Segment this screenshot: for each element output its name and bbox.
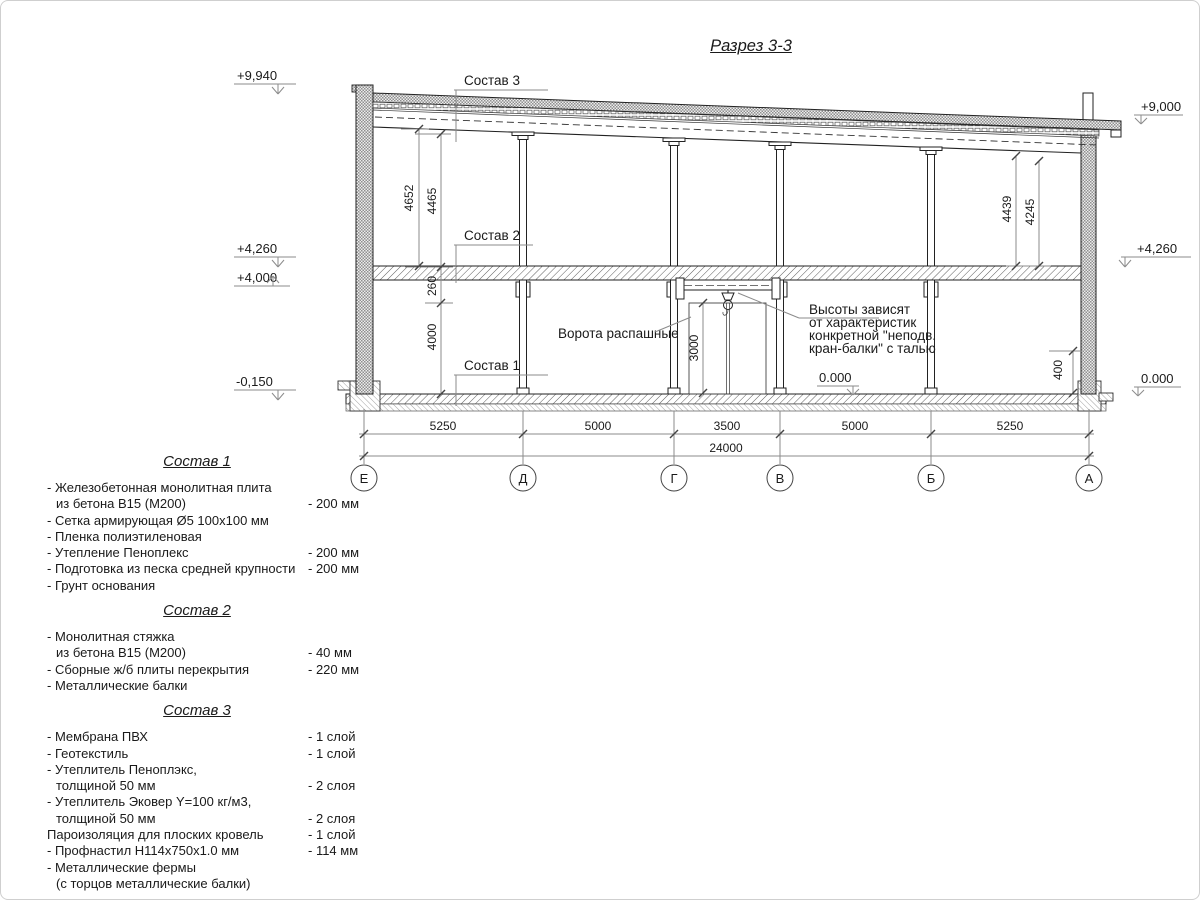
spec-row: - Геотекстиль- 1 слой — [47, 746, 377, 762]
column-upper — [512, 132, 942, 266]
spec-row: - Утепление Пеноплекс- 200 мм — [47, 545, 377, 561]
spec-row: - Сборные ж/б плиты перекрытия- 220 мм — [47, 662, 377, 678]
svg-text:260: 260 — [425, 276, 439, 296]
dim-bottom-chain: 5250 5000 3500 5000 5250 24000 — [359, 409, 1094, 464]
spec-heading: Состав 1 — [47, 453, 347, 474]
callout-crane-note: Высоты зависят от характеристик конкретн… — [738, 293, 936, 356]
svg-text:+4,260: +4,260 — [1137, 241, 1177, 256]
spec-row: - Пленка полиэтиленовая — [47, 529, 377, 545]
spec-item-value: - 1 слой — [308, 729, 356, 745]
spec-row: толщиной 50 мм- 2 слоя — [47, 778, 377, 794]
ground-slab — [346, 394, 1106, 411]
spec-row: - Профнастил Н114х750х1.0 мм- 114 мм — [47, 843, 377, 859]
svg-text:Г: Г — [670, 471, 677, 486]
spec-item-text: - Металлические фермы — [47, 860, 196, 875]
section-drawing: 3000 4652 4465 260 4000 44 — [1, 1, 1200, 501]
spec-row: - Утеплитель Эковер Y=100 кг/м3, — [47, 794, 377, 810]
elevation-mark-inner-ground: 0.000 — [817, 370, 859, 395]
spec-item-text: - Пленка полиэтиленовая — [47, 529, 202, 544]
svg-text:5250: 5250 — [430, 419, 457, 433]
svg-text:0.000: 0.000 — [819, 370, 852, 385]
spec-item-text: из бетона В15 (М200) — [47, 645, 186, 660]
floor-slab — [373, 266, 1081, 280]
svg-text:4245: 4245 — [1023, 198, 1037, 225]
spec-item-text: - Грунт основания — [47, 578, 155, 593]
spec-item-text: (с торцов металлические балки) — [47, 876, 251, 891]
svg-text:5250: 5250 — [997, 419, 1024, 433]
spec-row: - Металлические фермы — [47, 860, 377, 876]
spec-row: - Утеплитель Пеноплэкс, — [47, 762, 377, 778]
svg-text:Состав 2: Состав 2 — [464, 228, 520, 243]
spec-item-value: - 2 слоя — [308, 811, 355, 827]
svg-text:Состав 1: Состав 1 — [464, 358, 520, 373]
svg-text:А: А — [1085, 471, 1094, 486]
spec-item-value: - 2 слоя — [308, 778, 355, 794]
svg-text:В: В — [776, 471, 785, 486]
spec-item-value: - 114 мм — [308, 843, 358, 859]
spec-section: Состав 1- Железобетонная монолитная плит… — [47, 453, 377, 594]
spec-item-text: - Утепление Пеноплекс — [47, 545, 189, 560]
spec-row: - Монолитная стяжка — [47, 629, 377, 645]
spec-item-text: - Мембрана ПВХ — [47, 729, 148, 744]
spec-item-text: из бетона В15 (М200) — [47, 496, 186, 511]
spec-item-value: - 220 мм — [308, 662, 359, 678]
svg-text:Ворота распашные: Ворота распашные — [558, 326, 679, 341]
roof-assembly — [373, 93, 1121, 153]
spec-item-value: - 1 слой — [308, 746, 356, 762]
elevation-mark-left-floor2b: +4,000 — [234, 270, 290, 286]
svg-text:Б: Б — [927, 471, 936, 486]
svg-text:+4,260: +4,260 — [237, 241, 277, 256]
svg-text:Д: Д — [519, 471, 528, 486]
elevation-mark-right-ground: 0.000 — [1132, 371, 1181, 396]
spec-row: из бетона В15 (М200)- 200 мм — [47, 496, 377, 512]
spec-heading: Состав 3 — [47, 702, 347, 723]
spec-row: - Подготовка из песка средней крупности-… — [47, 561, 377, 577]
drawing-sheet: Разрез 3-3 — [0, 0, 1200, 900]
svg-text:4000: 4000 — [425, 323, 439, 350]
svg-text:+9,940: +9,940 — [237, 68, 277, 83]
dim-door-height: 3000 — [687, 299, 707, 397]
spec-sections: Состав 1- Железобетонная монолитная плит… — [47, 453, 377, 892]
spec-item-text: - Геотекстиль — [47, 746, 128, 761]
svg-text:24000: 24000 — [709, 441, 743, 455]
dim-plinth: 400 — [1049, 347, 1081, 397]
svg-text:3500: 3500 — [714, 419, 741, 433]
roof-edge-lip — [1111, 130, 1121, 137]
spec-item-text: - Утеплитель Эковер Y=100 кг/м3, — [47, 794, 251, 809]
spec-item-text: Пароизоляция для плоских кровель — [47, 827, 264, 842]
spec-row: из бетона В15 (М200)- 40 мм — [47, 645, 377, 661]
elevation-mark-left-ground: -0,150 — [234, 374, 296, 400]
spec-row: - Мембрана ПВХ- 1 слой — [47, 729, 377, 745]
svg-text:4652: 4652 — [402, 184, 416, 211]
right-wall — [1081, 93, 1096, 394]
svg-text:5000: 5000 — [842, 419, 869, 433]
left-wall — [352, 85, 373, 394]
spec-row: Пароизоляция для плоских кровель- 1 слой — [47, 827, 377, 843]
spec-section: Состав 2- Монолитная стяжкаиз бетона В15… — [47, 602, 377, 694]
spec-row: - Грунт основания — [47, 578, 377, 594]
svg-text:400: 400 — [1051, 360, 1065, 380]
elevation-mark-right-floor2: +4,260 — [1119, 241, 1191, 267]
svg-text:кран-балки" с талью: кран-балки" с талью — [809, 341, 936, 356]
svg-text:3000: 3000 — [687, 334, 701, 361]
spec-item-value: - 1 слой — [308, 827, 356, 843]
spec-item-text: - Сборные ж/б плиты перекрытия — [47, 662, 249, 677]
spec-item-value: - 200 мм — [308, 561, 359, 577]
elevation-mark-left-roof: +9,940 — [234, 68, 296, 94]
spec-item-text: - Утеплитель Пеноплэкс, — [47, 762, 197, 777]
spec-item-text: - Профнастил Н114х750х1.0 мм — [47, 843, 239, 858]
spec-row: (с торцов металлические балки) — [47, 876, 377, 892]
elevation-mark-right-roof: +9,000 — [1134, 99, 1183, 124]
spec-item-text: толщиной 50 мм — [47, 811, 156, 826]
spec-item-text: толщиной 50 мм — [47, 778, 156, 793]
spec-item-value: - 40 мм — [308, 645, 352, 661]
dim-right-vertical: 4439 4245 — [1000, 152, 1051, 270]
spec-row: толщиной 50 мм- 2 слоя — [47, 811, 377, 827]
spec-item-text: - Подготовка из песка средней крупности — [47, 561, 295, 576]
svg-text:0.000: 0.000 — [1141, 371, 1174, 386]
svg-text:5000: 5000 — [585, 419, 612, 433]
spec-section: Состав 3- Мембрана ПВХ- 1 слой- Геотекст… — [47, 702, 377, 892]
axis-bubbles: Е Д Г В Б А — [351, 465, 1102, 491]
spec-row: - Металлические балки — [47, 678, 377, 694]
spec-item-text: - Монолитная стяжка — [47, 629, 175, 644]
svg-text:4465: 4465 — [425, 187, 439, 214]
spec-item-text: - Железобетонная монолитная плита — [47, 480, 272, 495]
spec-item-text: - Металлические балки — [47, 678, 187, 693]
svg-text:4439: 4439 — [1000, 195, 1014, 222]
dim-left-vertical: 4652 4465 260 4000 — [401, 125, 453, 398]
svg-text:-0,150: -0,150 — [236, 374, 273, 389]
svg-text:Состав 3: Состав 3 — [464, 73, 520, 88]
spec-heading: Состав 2 — [47, 602, 347, 623]
spec-row: - Сетка армирующая Ø5 100х100 мм — [47, 513, 377, 529]
spec-item-value: - 200 мм — [308, 496, 359, 512]
elevation-mark-left-floor2: +4,260 — [234, 241, 296, 267]
spec-item-text: - Сетка армирующая Ø5 100х100 мм — [47, 513, 269, 528]
spec-row: - Железобетонная монолитная плита — [47, 480, 377, 496]
spec-item-value: - 200 мм — [308, 545, 359, 561]
svg-text:+9,000: +9,000 — [1141, 99, 1181, 114]
